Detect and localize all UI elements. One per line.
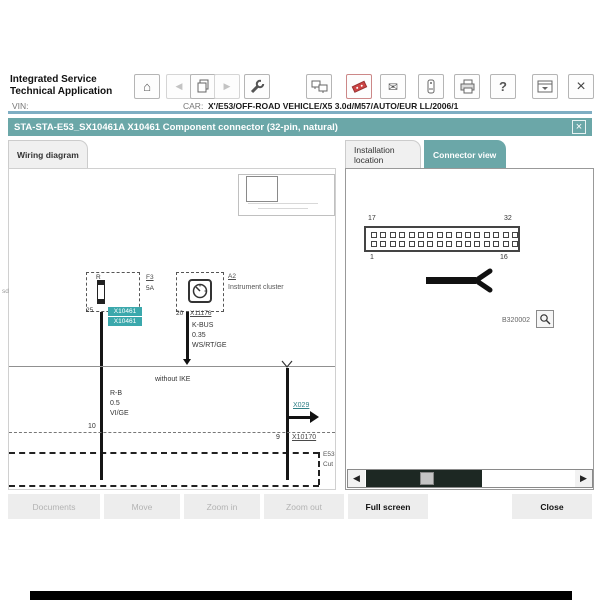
minimize-window-button[interactable] xyxy=(532,74,558,99)
pin-left-number: 10 xyxy=(88,423,96,431)
connector-pin xyxy=(427,241,433,247)
car-label: CAR: xyxy=(183,101,203,111)
connector-pin xyxy=(456,232,462,238)
x10170-link[interactable]: X10170 xyxy=(292,434,316,442)
cluster-pin-number: 20 xyxy=(176,310,183,317)
button-label: Documents xyxy=(33,502,76,512)
vin-label: VIN: xyxy=(12,101,29,111)
scrollbar-thumb[interactable] xyxy=(420,472,434,485)
connector-pin xyxy=(380,232,386,238)
wrench-icon xyxy=(249,79,265,95)
measurement-button[interactable] xyxy=(346,74,372,99)
forward-button[interactable]: ▶ xyxy=(214,74,240,99)
dialog-title: STA-STA-E53_SX10461A X10461 Component co… xyxy=(14,122,338,133)
wire-arrow-down xyxy=(183,359,191,365)
device-icon xyxy=(425,79,437,95)
ground-label-line1: E53 xyxy=(323,451,335,458)
connector-pin xyxy=(484,232,490,238)
cluster-label: Instrument cluster xyxy=(228,284,284,292)
documents-stack-icon xyxy=(196,79,211,94)
figure-id: B320002 xyxy=(502,317,530,324)
button-label: Zoom out xyxy=(286,502,322,512)
help-icon: ? xyxy=(499,79,507,94)
wire-bus-label: K-BUS xyxy=(192,322,213,330)
measurement-icon xyxy=(351,79,368,94)
zoom-out-button[interactable]: Zoom out xyxy=(264,494,344,519)
connector-view-panel xyxy=(345,168,594,490)
connector-pin xyxy=(390,241,396,247)
connector-pin xyxy=(399,232,405,238)
connector-pin xyxy=(474,241,480,247)
connector-pin xyxy=(493,241,499,247)
connection-manager-button[interactable] xyxy=(306,74,332,99)
magnifier-icon xyxy=(539,313,551,325)
wire-right-end xyxy=(286,452,289,480)
connector-pin xyxy=(418,232,424,238)
close-app-button[interactable]: × xyxy=(568,74,594,99)
home-button[interactable]: ⌂ xyxy=(134,74,160,99)
app-title: Integrated Service Technical Application xyxy=(10,74,112,98)
fuse-rating: 5A xyxy=(146,285,154,292)
x029-arrow-head xyxy=(310,411,319,423)
pin-corner-top-left: 17 xyxy=(368,215,376,222)
diagram-overview-viewport[interactable] xyxy=(246,176,278,202)
tab-label: Wiring diagram xyxy=(17,150,79,160)
connector-pin xyxy=(484,241,490,247)
wire-right xyxy=(286,368,289,452)
app-title-line1: Integrated Service xyxy=(10,74,112,86)
forward-icon: ▶ xyxy=(224,81,231,92)
fuse-component-box xyxy=(86,272,140,312)
mail-icon: ✉ xyxy=(388,80,398,94)
ground-band-side xyxy=(318,452,320,485)
connector-pin xyxy=(465,241,471,247)
device-status-button[interactable] xyxy=(418,74,444,99)
connector-pin xyxy=(371,241,377,247)
wire-gauge-label: 0.35 xyxy=(192,332,206,340)
close-button[interactable]: Close xyxy=(512,494,592,519)
documents-button[interactable]: Documents xyxy=(8,494,100,519)
connector-pin xyxy=(446,232,452,238)
dual-screen-icon xyxy=(311,79,328,94)
close-app-icon: × xyxy=(576,78,585,96)
connector-pin xyxy=(399,241,405,247)
dialog-close-button[interactable]: × xyxy=(572,120,586,134)
button-label: Full screen xyxy=(366,502,411,512)
x029-arrow xyxy=(288,416,310,419)
connector-chip-highlight[interactable]: X10461 xyxy=(108,317,142,326)
back-button[interactable]: ◀ xyxy=(166,74,192,99)
help-button[interactable]: ? xyxy=(490,74,516,99)
branch-note: without IKE xyxy=(155,376,190,384)
ground-band-top xyxy=(9,452,319,454)
fuse-cap xyxy=(98,281,104,285)
rail-junction-notch xyxy=(281,360,293,368)
header-divider xyxy=(8,111,592,114)
overview-line xyxy=(248,203,318,204)
fuse-cap xyxy=(98,299,104,303)
zoom-image-button[interactable] xyxy=(536,310,554,328)
back-icon: ◀ xyxy=(176,81,183,92)
scroll-left-icon: ◀ xyxy=(353,473,360,484)
left-wire-circuit: R-B xyxy=(110,390,122,398)
pin-corner-bottom-left: 1 xyxy=(370,254,374,261)
app-title-line2: Technical Application xyxy=(10,86,112,98)
ground-label-line2: Cut xyxy=(323,461,333,468)
tab-installation-location[interactable]: Installation location xyxy=(345,140,421,168)
connector-chip-highlight[interactable]: X10461 xyxy=(108,307,142,316)
full-screen-button[interactable]: Full screen xyxy=(348,494,428,519)
margin-note: sd xyxy=(2,288,9,295)
zoom-in-button[interactable]: Zoom in xyxy=(184,494,260,519)
connector-pin xyxy=(503,241,509,247)
scroll-right-icon: ▶ xyxy=(580,473,587,484)
connector-pin xyxy=(371,232,377,238)
button-label: Close xyxy=(540,502,563,512)
pin-corner-bottom-right: 16 xyxy=(500,254,508,261)
tab-label: Connector view xyxy=(433,150,496,160)
connector-pin xyxy=(512,232,518,238)
connector-pin xyxy=(418,241,424,247)
dialog-close-icon: × xyxy=(576,121,582,133)
scrollbar-left-button[interactable]: ◀ xyxy=(348,470,365,487)
move-button[interactable]: Move xyxy=(104,494,180,519)
print-button[interactable] xyxy=(454,74,480,99)
left-wire-gauge: 0.5 xyxy=(110,400,120,408)
tab-label: Installation location xyxy=(354,145,412,165)
fuse-pin-number: 25 xyxy=(86,307,93,314)
wire-left xyxy=(100,312,103,452)
connector-pin xyxy=(409,232,415,238)
connector-pin xyxy=(465,232,471,238)
tab-connector-view[interactable]: Connector view xyxy=(424,140,506,168)
connector-pin xyxy=(390,232,396,238)
taskbar-strip xyxy=(30,591,572,600)
connector-pin xyxy=(427,232,433,238)
connector-pin xyxy=(409,241,415,247)
printer-icon xyxy=(459,79,476,94)
tab-wiring-diagram[interactable]: Wiring diagram xyxy=(8,140,88,168)
cluster-connector-link[interactable]: X11176 xyxy=(190,310,211,317)
connector-pin xyxy=(437,241,443,247)
x029-link[interactable]: X029 xyxy=(293,402,309,410)
fuse-ref-link[interactable]: F3 xyxy=(146,274,154,281)
connector-pin xyxy=(380,241,386,247)
button-label: Move xyxy=(132,502,153,512)
service-functions-button[interactable] xyxy=(244,74,270,99)
connector-pins xyxy=(366,228,518,250)
connector-pin xyxy=(493,232,499,238)
connector-pin xyxy=(456,241,462,247)
cluster-ref-link[interactable]: A2 xyxy=(228,273,236,280)
connector-pin xyxy=(512,241,518,247)
ground-band-bottom xyxy=(9,485,319,487)
scrollbar-right-button[interactable]: ▶ xyxy=(575,470,592,487)
pin-right-number: 9 xyxy=(276,434,280,442)
connector-pin xyxy=(503,232,509,238)
fuse-symbol xyxy=(97,280,105,304)
gauge-icon xyxy=(190,281,210,301)
terminal-pin-drawing xyxy=(424,266,496,296)
home-icon: ⌂ xyxy=(143,79,151,94)
instrument-cluster-symbol xyxy=(188,279,212,303)
pin-corner-top-right: 32 xyxy=(504,215,512,222)
window-minimize-icon xyxy=(537,80,553,94)
connector-pin xyxy=(446,241,452,247)
connector-dashed-line xyxy=(9,432,335,433)
car-value: X'/E53/OFF-ROAD VEHICLE/X5 3.0d/M57/AUTO… xyxy=(208,101,458,111)
wire-cluster xyxy=(186,312,189,360)
connector-pin xyxy=(474,232,480,238)
overview-line xyxy=(258,208,308,209)
dialog-title-bar: STA-STA-E53_SX10461A X10461 Component co… xyxy=(8,118,592,136)
wire-left-end xyxy=(100,452,103,480)
left-wire-color: VI/GE xyxy=(110,410,129,418)
mail-button[interactable]: ✉ xyxy=(380,74,406,99)
connector-pin xyxy=(437,232,443,238)
button-label: Zoom in xyxy=(207,502,238,512)
connector-outline xyxy=(364,226,520,252)
wire-color-label: WS/RT/GE xyxy=(192,342,226,350)
documents-stack-button[interactable] xyxy=(190,74,216,99)
